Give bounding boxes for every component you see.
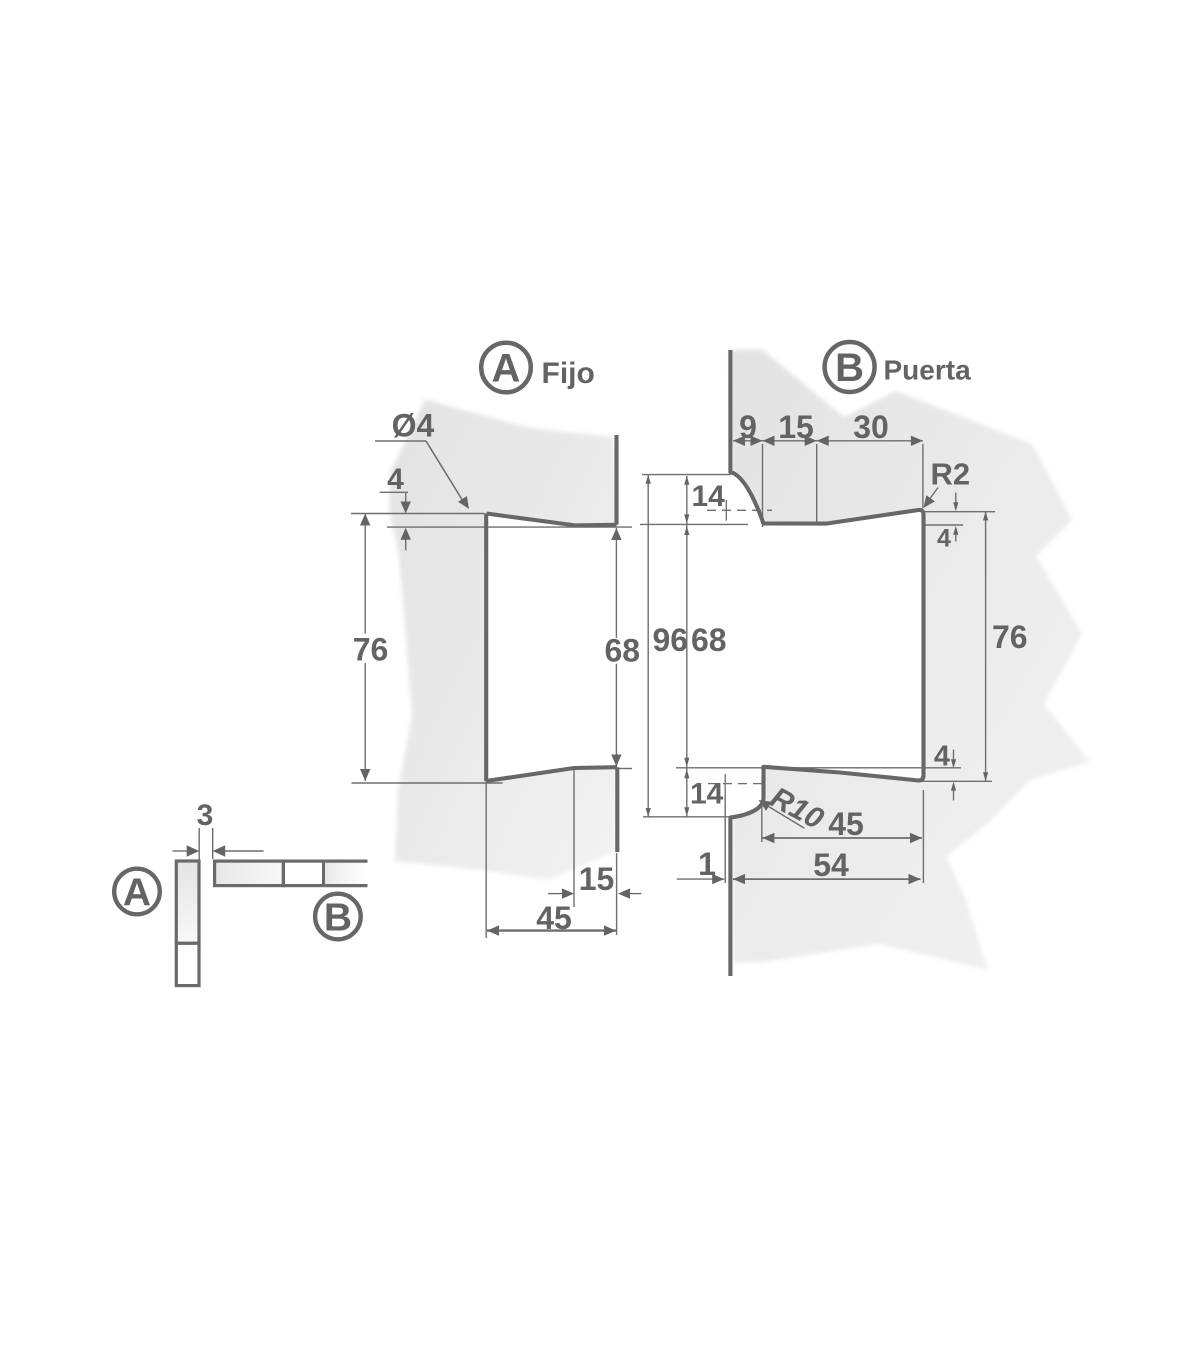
- svg-text:R2: R2: [931, 457, 971, 492]
- svg-text:Fijo: Fijo: [542, 357, 595, 390]
- svg-text:1: 1: [698, 846, 716, 882]
- svg-text:Puerta: Puerta: [884, 355, 972, 386]
- svg-text:4: 4: [387, 463, 404, 496]
- svg-text:B: B: [324, 897, 352, 940]
- svg-text:3: 3: [197, 799, 214, 832]
- svg-text:4: 4: [934, 741, 950, 773]
- svg-text:Ø4: Ø4: [392, 408, 435, 444]
- svg-text:15: 15: [778, 409, 814, 445]
- svg-text:A: A: [123, 872, 151, 915]
- svg-text:14: 14: [690, 778, 724, 811]
- svg-text:14: 14: [692, 480, 726, 513]
- svg-text:76: 76: [353, 632, 389, 668]
- svg-text:68: 68: [691, 622, 727, 658]
- svg-text:96: 96: [653, 622, 689, 658]
- svg-text:9: 9: [739, 409, 757, 445]
- svg-text:45: 45: [536, 900, 572, 936]
- svg-text:15: 15: [579, 861, 615, 897]
- svg-text:45: 45: [828, 806, 864, 842]
- svg-text:76: 76: [992, 619, 1028, 655]
- svg-text:A: A: [492, 347, 521, 391]
- svg-text:B: B: [835, 346, 864, 390]
- svg-text:54: 54: [813, 847, 849, 883]
- svg-text:4: 4: [937, 525, 951, 553]
- svg-text:68: 68: [605, 633, 641, 669]
- svg-text:30: 30: [853, 409, 889, 445]
